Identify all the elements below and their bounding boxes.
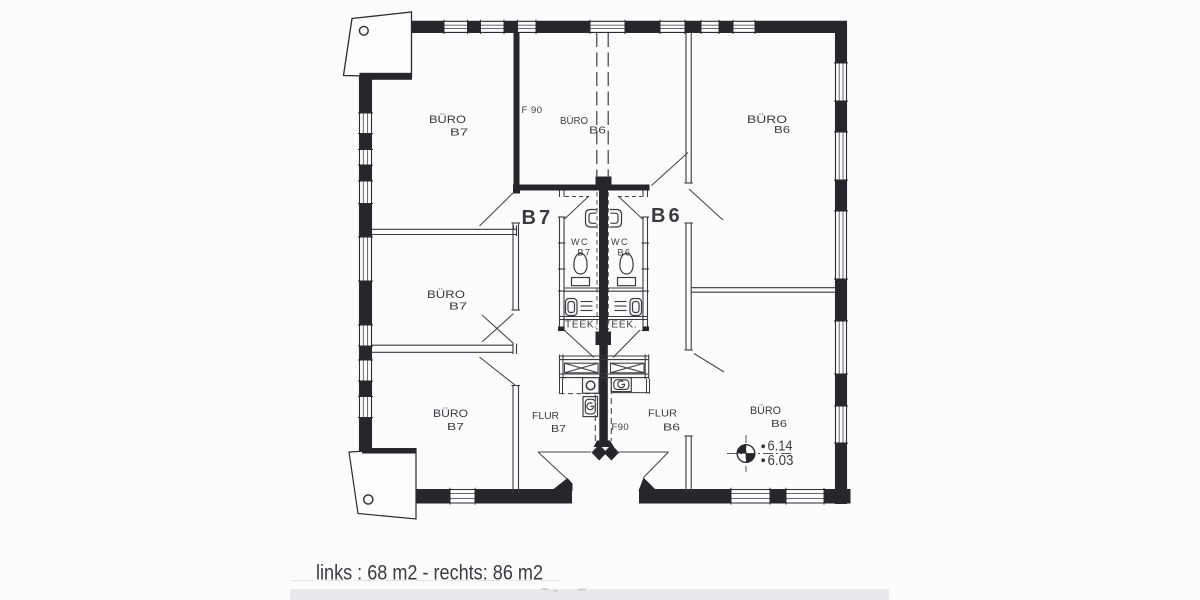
svg-text:B6: B6 (651, 205, 683, 227)
svg-text:TEEK.: TEEK. (605, 320, 638, 331)
svg-text:B7: B7 (522, 207, 554, 229)
svg-text:BÜRO: BÜRO (427, 289, 466, 301)
svg-text:B7: B7 (551, 424, 567, 435)
svg-text:B6: B6 (589, 126, 607, 137)
svg-text:TEEK.: TEEK. (565, 320, 598, 331)
svg-text:BÜRO: BÜRO (560, 115, 588, 127)
svg-text:B7: B7 (447, 422, 465, 433)
svg-text:BÜRO: BÜRO (750, 405, 781, 417)
svg-text:links : 68 m2 - rechts: 86 m2: links : 68 m2 - rechts: 86 m2 (316, 561, 543, 585)
svg-text:BÜRO: BÜRO (433, 408, 468, 420)
svg-text:B6: B6 (771, 419, 788, 430)
svg-text:WC: WC (571, 237, 589, 247)
svg-text:FLUR: FLUR (648, 408, 677, 420)
svg-text:B6: B6 (618, 248, 632, 258)
svg-text:B7: B7 (449, 302, 468, 313)
svg-text:6.03: 6.03 (768, 453, 794, 469)
svg-text:B6: B6 (774, 125, 791, 136)
svg-text:B7: B7 (450, 128, 469, 139)
svg-text:F90: F90 (612, 422, 630, 433)
svg-text:B6: B6 (663, 423, 681, 434)
svg-text:F 90: F 90 (522, 105, 543, 116)
svg-text:FLUR: FLUR (532, 410, 559, 422)
svg-text:BÜRO: BÜRO (429, 114, 467, 126)
svg-text:WC: WC (611, 237, 629, 247)
svg-text:B7: B7 (578, 248, 592, 258)
